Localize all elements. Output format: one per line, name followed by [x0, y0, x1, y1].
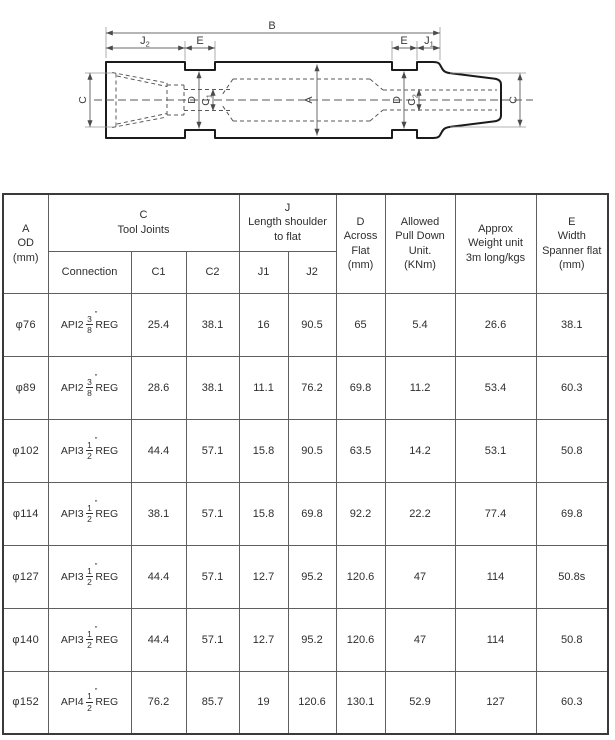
fraction-denominator: 2	[87, 451, 92, 461]
subheader-j1: J1	[239, 251, 288, 293]
weight-value: 53.1	[455, 419, 536, 482]
connection-suffix: REG	[95, 634, 118, 646]
e-value: 38.1	[536, 293, 608, 356]
label-c-right: C	[508, 96, 520, 104]
d-value: 120.6	[336, 608, 385, 671]
connection-prefix: API2	[61, 319, 84, 331]
fraction-denominator: 8	[87, 325, 92, 335]
label-j1: J1	[424, 35, 434, 49]
od-value: φ76	[3, 293, 48, 356]
inch-mark: ″	[95, 374, 97, 381]
fraction-numerator: 1	[86, 567, 94, 578]
e-value: 50.8s	[536, 545, 608, 608]
fraction-numerator: 3	[86, 378, 94, 389]
connection-value: API312″REG	[48, 545, 131, 608]
fraction-denominator: 2	[87, 514, 92, 524]
connection-suffix: REG	[95, 571, 118, 583]
connection-value: API238″REG	[48, 293, 131, 356]
connection-fraction: 12″	[86, 441, 94, 461]
weight-value: 114	[455, 608, 536, 671]
d-value: 63.5	[336, 419, 385, 482]
connection-value: API312″REG	[48, 482, 131, 545]
header-e-width: E Width Spanner flat (mm)	[536, 194, 608, 293]
connection-suffix: REG	[95, 382, 118, 394]
od-value: φ89	[3, 356, 48, 419]
j1-value: 11.1	[239, 356, 288, 419]
j2-value: 76.2	[288, 356, 336, 419]
inch-mark: ″	[95, 437, 97, 444]
inch-mark: ″	[95, 500, 97, 507]
od-value: φ102	[3, 419, 48, 482]
pull-down-value: 52.9	[385, 671, 455, 734]
subheader-j2: J2	[288, 251, 336, 293]
table-row: φ152 API412″REG 76.2 85.7 19 120.6 130.1…	[3, 671, 608, 734]
c1-value: 25.4	[131, 293, 186, 356]
table-row: φ114 API312″REG 38.1 57.1 15.8 69.8 92.2…	[3, 482, 608, 545]
connection-fraction: 12″	[86, 692, 94, 712]
connection-prefix: API3	[61, 634, 84, 646]
table-row: φ127 API312″REG 44.4 57.1 12.7 95.2 120.…	[3, 545, 608, 608]
weight-value: 114	[455, 545, 536, 608]
header-j-length: J Length shoulder to flat	[239, 194, 336, 251]
j1-value: 19	[239, 671, 288, 734]
j1-value: 12.7	[239, 608, 288, 671]
label-b: B	[268, 20, 275, 32]
weight-value: 53.4	[455, 356, 536, 419]
weight-value: 26.6	[455, 293, 536, 356]
j2-value: 90.5	[288, 293, 336, 356]
fraction-numerator: 1	[86, 630, 94, 641]
connection-suffix: REG	[95, 508, 118, 520]
header-row-1: A OD (mm) C Tool Joints J Length shoulde…	[3, 194, 608, 251]
d-value: 120.6	[336, 545, 385, 608]
fraction-numerator: 1	[86, 504, 94, 515]
e-value: 50.8	[536, 608, 608, 671]
fraction-denominator: 2	[87, 703, 92, 713]
spec-table: A OD (mm) C Tool Joints J Length shoulde…	[2, 193, 609, 735]
e-value: 50.8	[536, 419, 608, 482]
table-row: φ102 API312″REG 44.4 57.1 15.8 90.5 63.5…	[3, 419, 608, 482]
connection-prefix: API3	[61, 508, 84, 520]
j2-value: 95.2	[288, 545, 336, 608]
label-c-left: C	[77, 96, 89, 104]
connection-fraction: 12″	[86, 567, 94, 587]
od-value: φ127	[3, 545, 48, 608]
subheader-c1: C1	[131, 251, 186, 293]
c1-value: 28.6	[131, 356, 186, 419]
fraction-numerator: 1	[86, 692, 94, 703]
label-a: A	[303, 96, 315, 103]
table-row: φ140 API312″REG 44.4 57.1 12.7 95.2 120.…	[3, 608, 608, 671]
d-value: 92.2	[336, 482, 385, 545]
j1-value: 16	[239, 293, 288, 356]
inch-mark: ″	[95, 311, 97, 318]
e-value: 60.3	[536, 356, 608, 419]
connection-prefix: API2	[61, 382, 84, 394]
connection-fraction: 38″	[86, 315, 94, 335]
pull-down-value: 14.2	[385, 419, 455, 482]
od-value: φ114	[3, 482, 48, 545]
fraction-denominator: 2	[87, 577, 92, 587]
j2-value: 120.6	[288, 671, 336, 734]
od-value: φ152	[3, 671, 48, 734]
connection-prefix: API3	[61, 445, 84, 457]
connection-value: API238″REG	[48, 356, 131, 419]
j2-value: 90.5	[288, 419, 336, 482]
spec-page: B J2 E E J1 C D C1 A D C2 C A OD (mm) C …	[0, 0, 615, 740]
c1-value: 44.4	[131, 608, 186, 671]
od-value: φ140	[3, 608, 48, 671]
c1-value: 76.2	[131, 671, 186, 734]
inch-mark: ″	[95, 626, 97, 633]
header-d-across-flat: D Across Flat (mm)	[336, 194, 385, 293]
e-value: 60.3	[536, 671, 608, 734]
dimension-diagram: B J2 E E J1 C D C1 A D C2 C	[0, 0, 615, 190]
fraction-denominator: 8	[87, 388, 92, 398]
label-d-right: D	[391, 96, 403, 104]
connection-value: API312″REG	[48, 608, 131, 671]
subheader-connection: Connection	[48, 251, 131, 293]
pull-down-value: 47	[385, 545, 455, 608]
j1-value: 15.8	[239, 482, 288, 545]
table-row: φ89 API238″REG 28.6 38.1 11.1 76.2 69.8 …	[3, 356, 608, 419]
table-row: φ76 API238″REG 25.4 38.1 16 90.5 65 5.4 …	[3, 293, 608, 356]
c1-value: 38.1	[131, 482, 186, 545]
pull-down-value: 22.2	[385, 482, 455, 545]
c1-value: 44.4	[131, 419, 186, 482]
connection-prefix: API4	[61, 696, 84, 708]
pull-down-value: 5.4	[385, 293, 455, 356]
weight-value: 77.4	[455, 482, 536, 545]
c2-value: 57.1	[186, 419, 239, 482]
fraction-denominator: 2	[87, 640, 92, 650]
c2-value: 57.1	[186, 482, 239, 545]
c2-value: 38.1	[186, 293, 239, 356]
c2-value: 57.1	[186, 545, 239, 608]
connection-value: API312″REG	[48, 419, 131, 482]
header-a-od: A OD (mm)	[3, 194, 48, 293]
j2-value: 69.8	[288, 482, 336, 545]
c2-value: 38.1	[186, 356, 239, 419]
e-value: 69.8	[536, 482, 608, 545]
label-j2: J2	[140, 35, 150, 49]
header-allowed-pull-down: Allowed Pull Down Unit. (KNm)	[385, 194, 455, 293]
connection-suffix: REG	[95, 319, 118, 331]
label-e-left: E	[196, 35, 203, 47]
label-e-right: E	[400, 35, 407, 47]
d-value: 65	[336, 293, 385, 356]
d-value: 130.1	[336, 671, 385, 734]
header-approx-weight: Approx Weight unit 3m long/kgs	[455, 194, 536, 293]
fraction-numerator: 1	[86, 441, 94, 452]
c2-value: 57.1	[186, 608, 239, 671]
inch-mark: ″	[95, 563, 97, 570]
connection-suffix: REG	[95, 696, 118, 708]
weight-value: 127	[455, 671, 536, 734]
label-d-left: D	[186, 96, 198, 104]
pull-down-value: 47	[385, 608, 455, 671]
connection-value: API412″REG	[48, 671, 131, 734]
connection-prefix: API3	[61, 571, 84, 583]
j2-value: 95.2	[288, 608, 336, 671]
subheader-c2: C2	[186, 251, 239, 293]
c2-value: 85.7	[186, 671, 239, 734]
inch-mark: ″	[95, 688, 97, 695]
pull-down-value: 11.2	[385, 356, 455, 419]
c1-value: 44.4	[131, 545, 186, 608]
connection-fraction: 38″	[86, 378, 94, 398]
connection-fraction: 12″	[86, 630, 94, 650]
fraction-numerator: 3	[86, 315, 94, 326]
connection-fraction: 12″	[86, 504, 94, 524]
header-c-tool-joints: C Tool Joints	[48, 194, 239, 251]
j1-value: 12.7	[239, 545, 288, 608]
d-value: 69.8	[336, 356, 385, 419]
connection-suffix: REG	[95, 445, 118, 457]
j1-value: 15.8	[239, 419, 288, 482]
